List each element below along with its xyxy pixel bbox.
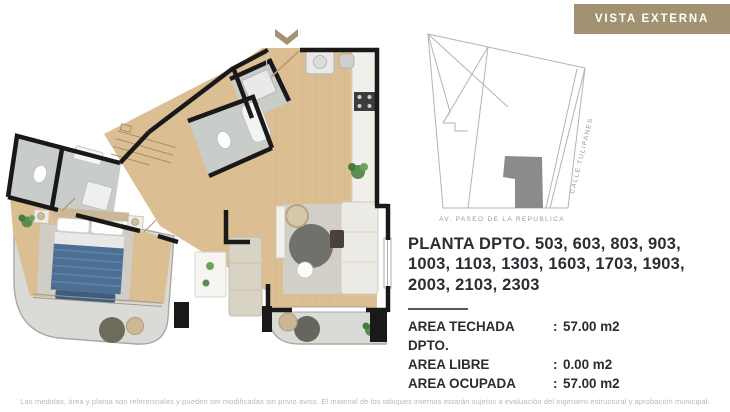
disclaimer-text: Las medidas, área y planta son referenci…	[0, 397, 730, 406]
area-colon: :	[553, 375, 563, 394]
area-label: AREA LIBRE	[408, 356, 553, 375]
plan-title: PLANTA DPTO. 503, 603, 803, 903, 1003, 1…	[408, 234, 728, 295]
area-colon: :	[553, 318, 563, 356]
area-label: AREA OCUPADA	[408, 375, 553, 394]
map-street-bottom-label: AV. PASEO DE LA REPUBLICA	[439, 216, 565, 223]
map-street-right-label: CALLE TULIPANES	[569, 117, 595, 195]
area-row-ocupada: AREA OCUPADA : 57.00 m2	[408, 375, 728, 394]
plan-info: PLANTA DPTO. 503, 603, 803, 903, 1003, 1…	[408, 234, 728, 393]
area-label: AREA TECHADA DPTO.	[408, 318, 553, 356]
map-building-footprint	[503, 156, 543, 208]
area-row-techada: AREA TECHADA DPTO. : 57.00 m2	[408, 318, 728, 356]
area-row-libre: AREA LIBRE : 0.00 m2	[408, 356, 728, 375]
entrance-chevron-icon	[275, 29, 298, 45]
area-value: 57.00 m2	[563, 375, 620, 394]
area-colon: :	[553, 356, 563, 375]
bed	[47, 207, 129, 303]
location-map: AV. PASEO DE LA REPUBLICA CALLE TULIPANE…	[404, 22, 600, 228]
floorplan-page: VISTA EXTERNA AV. PASEO DE LA REPUBLICA …	[0, 0, 730, 412]
area-value: 57.00 m2	[563, 318, 620, 356]
divider	[408, 308, 468, 310]
floor-plan-graphic	[0, 0, 400, 380]
area-value: 0.00 m2	[563, 356, 612, 375]
